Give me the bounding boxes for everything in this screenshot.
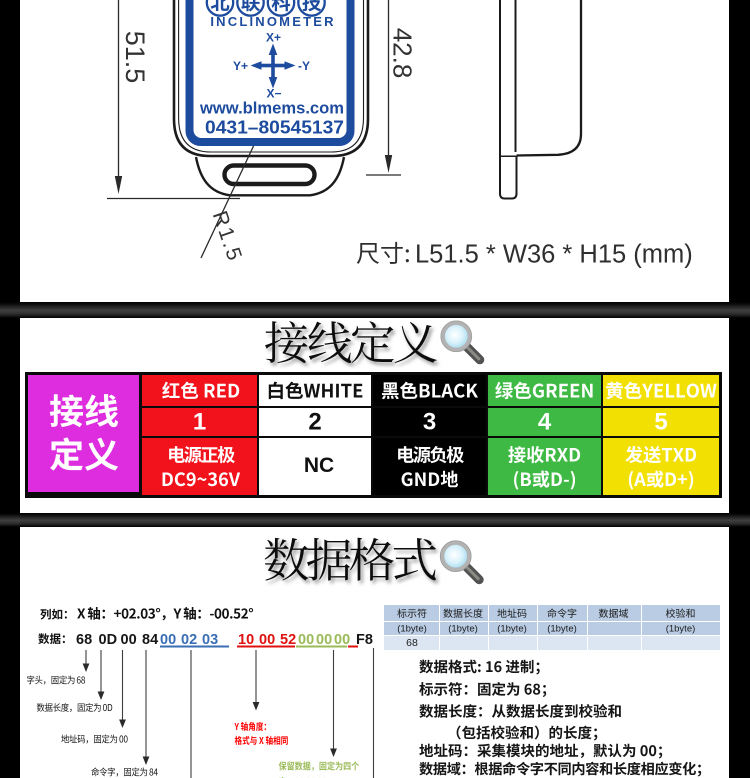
svg-text:0D: 0D <box>99 632 118 648</box>
svg-text:(1byte): (1byte) <box>397 624 427 635</box>
svg-text:F8: F8 <box>356 632 373 648</box>
svg-text:-Y: -Y <box>298 59 310 73</box>
svg-text:68: 68 <box>406 637 418 649</box>
svg-text:68: 68 <box>76 632 92 648</box>
svg-text:Y+: Y+ <box>233 59 248 73</box>
svg-text:(1byte): (1byte) <box>666 624 696 635</box>
svg-text:5: 5 <box>654 409 667 436</box>
svg-text:www.blmems.com: www.blmems.com <box>199 99 344 118</box>
svg-text:(1byte): (1byte) <box>547 624 577 635</box>
svg-text:(1byte): (1byte) <box>497 624 527 635</box>
svg-text:X+: X+ <box>266 31 281 45</box>
svg-text:(1byte): (1byte) <box>448 624 478 635</box>
svg-text:84: 84 <box>142 632 158 648</box>
svg-text:INCLINOMETER: INCLINOMETER <box>210 14 335 29</box>
svg-text:00: 00 <box>121 632 137 648</box>
svg-text:42.8: 42.8 <box>388 28 418 79</box>
svg-text:2: 2 <box>308 409 321 436</box>
svg-text:0431–80545137: 0431–80545137 <box>205 117 344 138</box>
svg-text:NC: NC <box>304 454 334 477</box>
svg-text:L51.5 * W36 * H15 (mm): L51.5 * W36 * H15 (mm) <box>415 241 693 269</box>
svg-text:3: 3 <box>423 409 436 436</box>
svg-text:51.5: 51.5 <box>120 31 150 84</box>
svg-text:4: 4 <box>538 409 552 436</box>
svg-text:1: 1 <box>193 409 206 436</box>
svg-text:R1.5: R1.5 <box>208 208 247 265</box>
